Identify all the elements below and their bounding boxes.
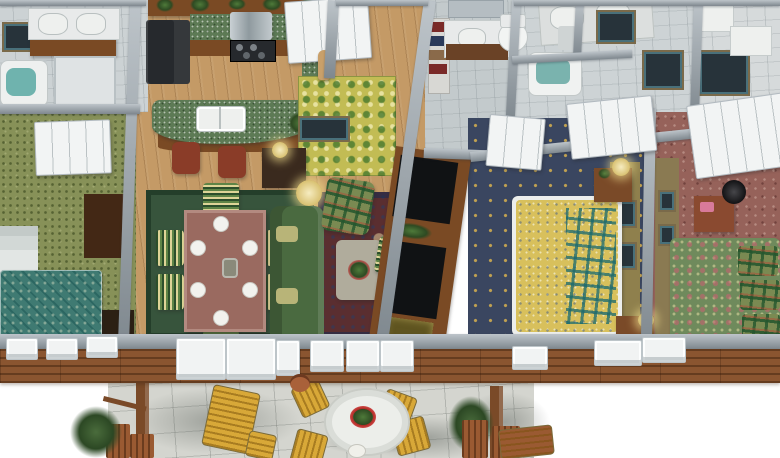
- planter-right-1: [462, 420, 488, 458]
- window-right-3: [642, 337, 686, 363]
- wall-top-right: [514, 0, 780, 6]
- stove-burner-2: [250, 44, 257, 51]
- towel-red-2: [429, 64, 447, 74]
- console-lamp: [272, 142, 288, 158]
- island-sink-divider: [219, 107, 221, 129]
- place-setting-3: [190, 240, 206, 256]
- wall-bath-bedroom-left: [0, 104, 140, 114]
- bar-stool-1: [172, 142, 200, 174]
- patio-french-door-2: [226, 338, 276, 380]
- window-right-1: [512, 346, 548, 370]
- flower-centerpiece: [350, 406, 376, 428]
- bed-master-plaid-throw: [566, 208, 616, 324]
- living-door-1: [310, 340, 344, 372]
- dining-chair-left-1: [156, 230, 184, 266]
- place-setting-5: [242, 240, 258, 256]
- bath-mirror: [448, 0, 504, 18]
- window-left-1: [6, 338, 38, 360]
- framed-painting: [298, 116, 350, 142]
- framed-art-bedroom-right-1: [658, 190, 676, 212]
- utility-fixture-2: [730, 26, 772, 56]
- vanity-sink-2: [76, 13, 106, 35]
- shower-stall: [54, 56, 116, 108]
- patio-sidelight: [276, 340, 300, 376]
- place-setting-4: [190, 282, 206, 298]
- stove-burner-4: [258, 52, 265, 59]
- bedroom-right-bifold-closet: [686, 92, 780, 179]
- closet-doors-left: [34, 119, 112, 176]
- bed-plaid-pillow-2: [740, 280, 780, 310]
- sofa-table-lamp: [296, 180, 322, 206]
- black-lamp: [722, 180, 746, 204]
- place-setting-6: [242, 282, 258, 298]
- stove-burner-3: [243, 52, 250, 59]
- refrigerator: [146, 20, 190, 84]
- window-right-2: [594, 340, 642, 366]
- patio-french-door-1: [176, 338, 226, 380]
- flower-pot-small: [348, 444, 366, 458]
- framed-art-guest-1: [596, 10, 636, 44]
- table-centerpiece: [222, 258, 238, 278]
- window-left-3: [86, 336, 118, 358]
- stove-burner-1: [236, 44, 243, 51]
- hall-vanity-cabinet: [446, 44, 508, 60]
- bed-master-frame: [512, 196, 622, 336]
- terracotta-pot: [290, 374, 310, 392]
- guest-bathtub-water: [536, 60, 570, 84]
- dining-chair-left-2: [156, 274, 184, 310]
- place-setting-2: [213, 310, 229, 326]
- wall-top-foyer: [336, 0, 428, 6]
- vanity-sink-1: [38, 13, 68, 35]
- master-closet-doors: [566, 95, 657, 160]
- nightstand-plant: [598, 168, 611, 179]
- nightstand-lamp-1: [612, 158, 630, 176]
- wall-top-left: [0, 0, 146, 6]
- planter-left-2: [130, 434, 154, 458]
- framed-art-guest-2: [642, 50, 684, 90]
- living-door-3: [380, 340, 414, 372]
- window-left-2: [46, 338, 78, 360]
- bar-stool-2: [218, 146, 246, 178]
- range-hood: [230, 12, 272, 40]
- shrub-left: [70, 406, 122, 458]
- sofa-pillow-2: [276, 288, 298, 304]
- framed-art-guest-3: [698, 50, 750, 96]
- dining-chair-top: [203, 183, 239, 213]
- island-sink: [196, 106, 246, 132]
- master-bedroom-door: [485, 114, 545, 171]
- garden-tub-water: [6, 68, 36, 96]
- floorplan-rendering: [0, 0, 780, 458]
- coffee-table-flowers: [348, 260, 370, 280]
- living-door-2: [346, 340, 380, 372]
- bed-plaid-pillow-1: [738, 246, 778, 276]
- sofa-pillow-1: [276, 226, 298, 242]
- chaise-ottoman: [245, 430, 278, 458]
- place-setting-1: [213, 216, 229, 232]
- deck-steps: [498, 424, 555, 458]
- plaid-armchair: [320, 176, 375, 236]
- nightstand-pink-item: [700, 202, 714, 212]
